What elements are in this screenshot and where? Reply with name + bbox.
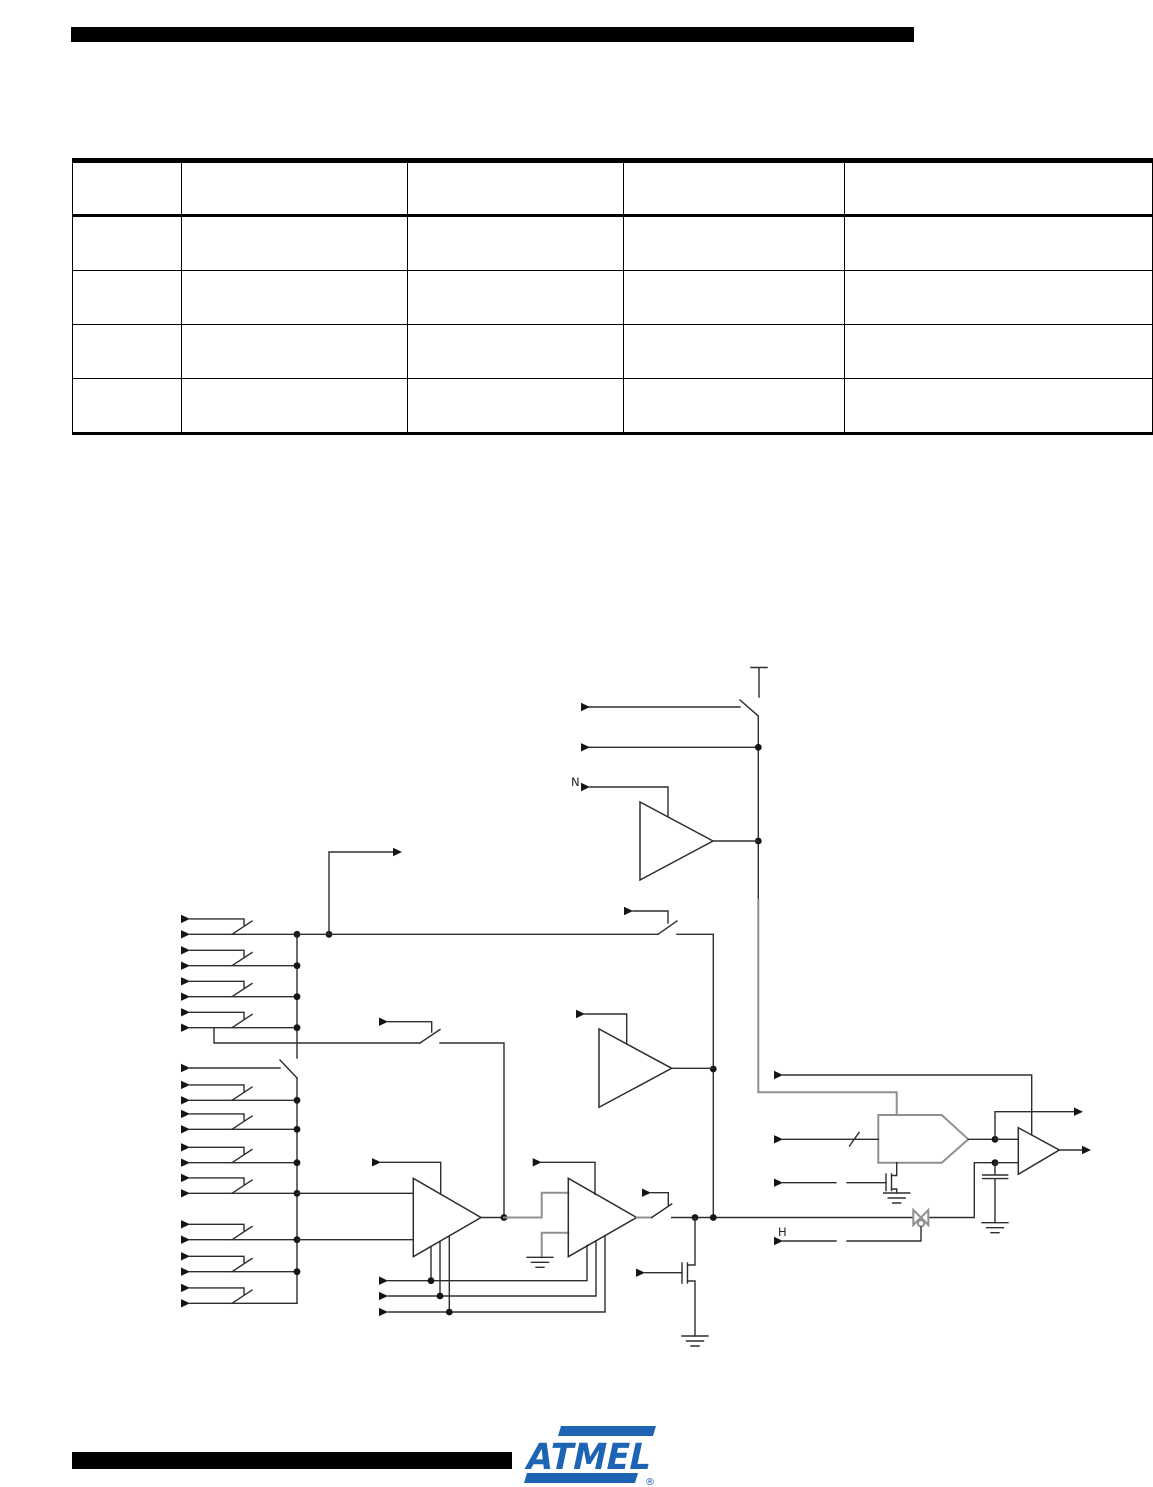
mosfet-1 [774,1163,910,1203]
ground-symbol [527,1257,553,1267]
input-buffer-top: N [571,775,758,880]
mux-gate-box [774,1115,995,1163]
buffer-mid [576,1010,713,1108]
output-buffer-2 [504,1158,672,1267]
logo-bottom-bar [524,1473,638,1483]
mosfet-2 [636,1218,708,1347]
alt-output-line [214,1018,504,1218]
logo-text: ATMEL [524,1435,656,1478]
ground-symbol [682,1336,708,1346]
datasheet-page: N [0,0,1153,1487]
mux-column-lower [181,1060,300,1308]
vcc-symbol [751,668,767,698]
port-line-switch [297,907,717,1218]
capacitor [983,1163,1008,1223]
footer-bar [72,1452,512,1469]
label-h: H [778,1225,787,1239]
atmel-logo: ATMEL ® [524,1424,656,1487]
registered-mark: ® [645,1477,655,1487]
output-buffer-1 [297,1158,507,1312]
pin-output-line [672,1163,995,1221]
label-n: N [571,775,580,789]
circuit-diagram: N [0,0,1153,1487]
mux-column-upper [181,848,402,1058]
analog-switch: H [774,1210,928,1245]
pullup-rail [581,716,897,1115]
pullup-switch [581,700,758,716]
schmitt-trigger [1018,1128,1059,1175]
ground-symbol [884,1193,910,1203]
schmitt-section [774,1071,1091,1233]
ground-symbol [982,1223,1008,1233]
